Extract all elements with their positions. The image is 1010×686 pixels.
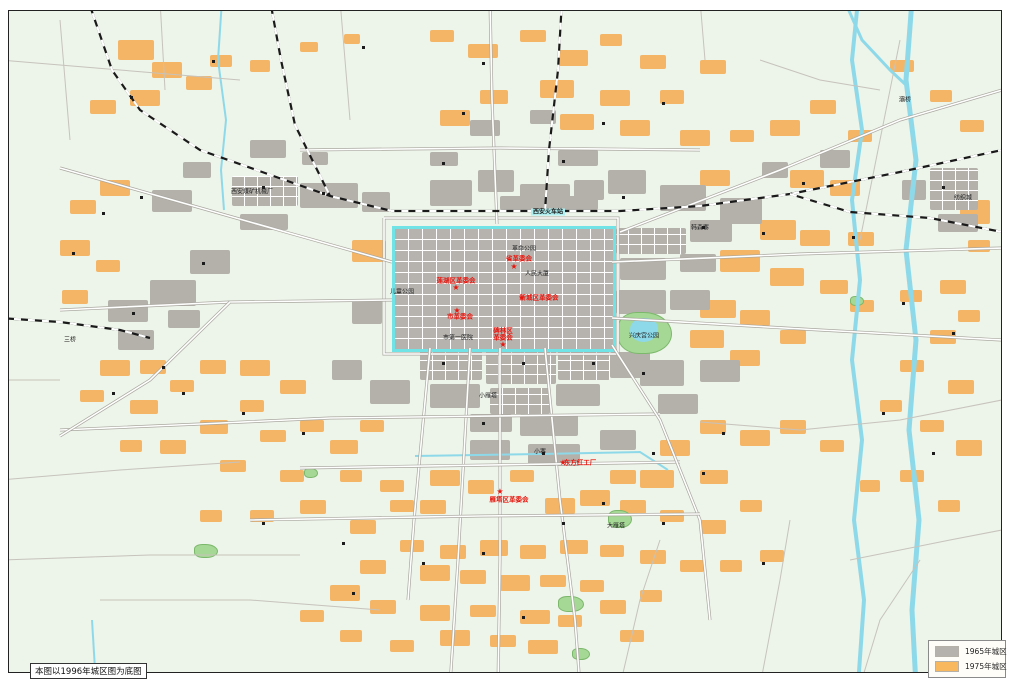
urban-area-1965 xyxy=(362,192,390,212)
urban-area-1965 xyxy=(930,168,978,210)
urban-area-1975 xyxy=(118,40,154,60)
urban-area-1975 xyxy=(880,400,902,412)
urban-area-1965 xyxy=(150,280,196,306)
urban-area-1975 xyxy=(968,240,990,252)
park-area xyxy=(304,468,318,478)
urban-area-1965 xyxy=(660,185,706,211)
building-footprint xyxy=(112,392,115,395)
urban-area-1975 xyxy=(420,500,446,514)
building-footprint xyxy=(602,502,605,505)
river xyxy=(906,10,919,673)
urban-area-1975 xyxy=(100,360,130,376)
urban-area-1965 xyxy=(680,254,716,272)
urban-area-1975 xyxy=(620,630,644,642)
urban-area-1975 xyxy=(740,310,770,326)
building-footprint xyxy=(592,362,595,365)
urban-area-1975 xyxy=(848,130,872,142)
major-road-casing xyxy=(250,514,700,520)
building-footprint xyxy=(622,196,625,199)
urban-area-1975 xyxy=(780,420,806,434)
place-label: 兴庆宫公园 xyxy=(629,333,659,340)
urban-area-1975 xyxy=(440,545,466,559)
building-footprint xyxy=(852,236,855,239)
urban-area-1965 xyxy=(490,388,550,414)
urban-area-1975 xyxy=(370,600,396,614)
urban-area-1975 xyxy=(780,330,806,344)
urban-area-1975 xyxy=(300,610,324,622)
place-label: 三桥 xyxy=(64,337,76,344)
building-footprint xyxy=(182,392,185,395)
urban-area-1965 xyxy=(352,300,382,324)
urban-area-1965 xyxy=(820,150,850,168)
urban-area-1975 xyxy=(720,560,742,572)
urban-area-1975 xyxy=(130,400,158,414)
urban-area-1965 xyxy=(608,170,646,194)
urban-area-1975 xyxy=(860,480,880,492)
urban-area-1965 xyxy=(558,150,598,166)
urban-area-1975 xyxy=(350,520,376,534)
urban-area-1975 xyxy=(760,220,796,240)
urban-area-1965 xyxy=(640,360,684,386)
urban-area-1975 xyxy=(560,114,594,130)
committee-star-icon: ★ xyxy=(452,284,459,292)
urban-area-1975 xyxy=(160,440,186,454)
urban-area-1975 xyxy=(820,440,844,452)
urban-area-1965 xyxy=(302,152,328,165)
urban-area-1975 xyxy=(100,180,130,196)
building-footprint xyxy=(702,472,705,475)
place-label: 儿童公园 xyxy=(390,289,414,296)
minor-road xyxy=(60,20,70,140)
urban-area-1975 xyxy=(800,230,830,246)
urban-area-1975 xyxy=(220,460,246,472)
major-road-casing xyxy=(300,462,680,468)
urban-area-1975 xyxy=(640,590,662,602)
urban-area-1965 xyxy=(240,214,288,230)
urban-area-1965 xyxy=(938,214,978,232)
urban-area-1975 xyxy=(610,470,636,484)
urban-area-1975 xyxy=(360,560,386,574)
urban-area-1975 xyxy=(340,470,362,482)
urban-area-1965 xyxy=(118,330,154,350)
urban-area-1975 xyxy=(520,30,546,42)
place-label: 市第一医院 xyxy=(443,335,473,342)
minor-road xyxy=(8,462,240,480)
urban-area-1965 xyxy=(470,120,500,136)
legend-swatch-1975 xyxy=(935,661,959,672)
urban-area-1975 xyxy=(400,540,424,552)
urban-area-1975 xyxy=(740,500,762,512)
park-area xyxy=(558,596,584,612)
building-footprint xyxy=(562,522,565,525)
urban-area-1975 xyxy=(520,545,546,559)
building-footprint xyxy=(352,592,355,595)
urban-area-1975 xyxy=(360,420,384,432)
minor-road xyxy=(700,10,705,60)
building-footprint xyxy=(72,252,75,255)
urban-area-1965 xyxy=(420,350,482,380)
committee-star-icon: ★ xyxy=(559,459,566,467)
urban-area-1975 xyxy=(580,490,610,506)
legend-label-1975: 1975年城区 xyxy=(965,661,1007,672)
urban-area-1975 xyxy=(500,575,530,591)
legend-swatch-1965 xyxy=(935,646,959,657)
urban-area-1975 xyxy=(460,570,486,584)
building-footprint xyxy=(662,522,665,525)
building-footprint xyxy=(882,412,885,415)
urban-area-1965 xyxy=(600,430,636,450)
major-road xyxy=(300,148,700,150)
urban-area-1975 xyxy=(620,120,650,136)
urban-area-1975 xyxy=(260,430,286,442)
building-footprint xyxy=(342,542,345,545)
building-footprint xyxy=(262,522,265,525)
urban-area-1975 xyxy=(848,232,874,246)
urban-area-1975 xyxy=(640,550,666,564)
urban-area-1975 xyxy=(490,635,516,647)
place-label: 韩森寨 xyxy=(691,225,709,232)
committee-star-icon: ★ xyxy=(499,341,506,349)
building-footprint xyxy=(642,372,645,375)
urban-area-1965 xyxy=(332,360,362,380)
urban-area-1975 xyxy=(760,550,784,562)
committee-label: 雁塔区革委会 xyxy=(490,497,529,504)
urban-area-1975 xyxy=(960,120,984,132)
urban-area-1975 xyxy=(890,60,914,72)
building-footprint xyxy=(140,196,143,199)
urban-area-1975 xyxy=(558,50,588,66)
place-label: 西安煤矿机械厂 xyxy=(231,189,273,196)
building-footprint xyxy=(242,412,245,415)
river xyxy=(852,10,864,673)
urban-area-1975 xyxy=(730,130,754,142)
urban-area-1975 xyxy=(62,290,88,304)
urban-area-1965 xyxy=(762,162,788,178)
map-canvas: 革命公园兴庆宫公园儿童公园人民大厦纺织城西安煤矿机械厂大雁塔小寨韩森寨小雁塔市第… xyxy=(8,10,1002,673)
urban-area-1975 xyxy=(810,100,836,114)
urban-area-1965 xyxy=(250,140,286,158)
urban-area-1965 xyxy=(478,170,514,192)
place-label: 纺织城 xyxy=(954,195,972,202)
urban-area-1975 xyxy=(440,110,470,126)
urban-area-1975 xyxy=(340,630,362,642)
minor-road xyxy=(100,600,380,610)
urban-area-1965 xyxy=(620,258,666,280)
urban-area-1975 xyxy=(900,470,924,482)
urban-area-1965 xyxy=(370,380,410,404)
urban-area-1975 xyxy=(700,60,726,74)
urban-area-1965 xyxy=(520,414,578,436)
urban-area-1975 xyxy=(680,130,710,146)
urban-area-1975 xyxy=(830,180,860,196)
major-road-casing xyxy=(60,418,330,430)
urban-area-1965 xyxy=(183,162,211,178)
urban-area-1975 xyxy=(560,540,588,554)
urban-area-1975 xyxy=(90,100,116,114)
building-footprint xyxy=(202,262,205,265)
urban-area-1975 xyxy=(390,640,414,652)
committee-star-icon: ★ xyxy=(453,307,460,315)
building-footprint xyxy=(762,562,765,565)
building-footprint xyxy=(302,432,305,435)
urban-area-1975 xyxy=(96,260,120,272)
building-footprint xyxy=(482,552,485,555)
committee-star-icon: ★ xyxy=(518,294,525,302)
major-road xyxy=(300,462,680,468)
building-footprint xyxy=(130,96,133,99)
urban-area-1965 xyxy=(486,350,556,384)
major-road-casing xyxy=(300,148,700,150)
urban-area-1975 xyxy=(700,520,726,534)
minor-road xyxy=(340,10,350,120)
building-footprint xyxy=(132,312,135,315)
urban-area-1965 xyxy=(470,414,512,432)
urban-area-1975 xyxy=(250,60,270,72)
urban-area-1975 xyxy=(956,440,982,456)
minor-road xyxy=(760,520,790,673)
urban-area-1975 xyxy=(770,268,804,286)
urban-area-1975 xyxy=(200,360,226,374)
railway xyxy=(270,10,330,196)
park-area xyxy=(194,544,218,558)
committee-star-icon: ★ xyxy=(510,263,517,271)
building-footprint xyxy=(662,102,665,105)
building-footprint xyxy=(422,562,425,565)
place-label: 小寨 xyxy=(534,449,546,456)
urban-area-1965 xyxy=(530,110,556,124)
minor-road xyxy=(760,60,880,90)
urban-area-1975 xyxy=(440,630,470,646)
urban-area-1975 xyxy=(430,470,460,486)
major-road xyxy=(408,348,430,600)
urban-area-1975 xyxy=(60,240,90,256)
urban-area-1975 xyxy=(280,470,304,482)
minor-road xyxy=(160,10,165,90)
urban-area-1975 xyxy=(170,380,194,392)
urban-area-1975 xyxy=(790,170,824,188)
urban-area-1975 xyxy=(300,500,326,514)
urban-area-1975 xyxy=(80,390,104,402)
minor-road xyxy=(700,400,1002,430)
urban-area-1975 xyxy=(240,360,270,376)
urban-area-1975 xyxy=(580,580,604,592)
urban-area-1975 xyxy=(660,510,684,522)
building-footprint xyxy=(522,362,525,365)
building-footprint xyxy=(522,616,525,619)
building-footprint xyxy=(942,186,945,189)
building-footprint xyxy=(482,62,485,65)
building-footprint xyxy=(362,46,365,49)
urban-area-1975 xyxy=(344,34,360,44)
urban-area-1975 xyxy=(558,615,582,627)
urban-area-1975 xyxy=(740,430,770,446)
urban-area-1965 xyxy=(556,384,600,406)
urban-area-1965 xyxy=(430,180,472,206)
building-footprint xyxy=(442,162,445,165)
urban-area-1975 xyxy=(545,498,575,514)
place-label: 人民大厦 xyxy=(525,271,549,278)
urban-area-1965 xyxy=(168,310,200,328)
urban-area-1975 xyxy=(680,560,704,572)
committee-star-icon: ★ xyxy=(496,488,503,496)
urban-area-1975 xyxy=(528,640,558,654)
urban-area-1965 xyxy=(430,384,480,408)
railway-dash xyxy=(270,10,330,196)
minor-road xyxy=(8,555,300,560)
urban-area-1975 xyxy=(540,575,566,587)
urban-area-1975 xyxy=(130,90,160,106)
railway-station-label: 西安火车站 xyxy=(531,209,565,216)
urban-area-1975 xyxy=(600,90,630,106)
building-footprint xyxy=(802,182,805,185)
urban-area-1975 xyxy=(920,420,944,432)
urban-area-1975 xyxy=(600,600,626,614)
urban-area-1975 xyxy=(958,310,980,322)
urban-area-1975 xyxy=(940,280,966,294)
place-label: 小雁塔 xyxy=(479,393,497,400)
major-road xyxy=(60,418,330,430)
urban-area-1975 xyxy=(820,280,848,294)
urban-area-1975 xyxy=(200,510,222,522)
urban-area-1975 xyxy=(390,500,414,512)
urban-area-1975 xyxy=(468,480,494,494)
urban-area-1965 xyxy=(190,250,230,274)
building-footprint xyxy=(562,160,565,163)
urban-area-1975 xyxy=(900,360,924,372)
urban-area-1975 xyxy=(70,200,96,214)
urban-area-1975 xyxy=(120,440,142,452)
map-page: 革命公园兴庆宫公园儿童公园人民大厦纺织城西安煤矿机械厂大雁塔小寨韩森寨小雁塔市第… xyxy=(0,0,1010,686)
river xyxy=(218,10,226,210)
urban-area-1975 xyxy=(470,605,496,617)
building-footprint xyxy=(762,232,765,235)
building-footprint xyxy=(482,422,485,425)
urban-area-1975 xyxy=(938,500,960,512)
urban-area-1965 xyxy=(670,290,710,310)
committee-label: 东方红工厂 xyxy=(564,460,597,467)
minor-road xyxy=(860,560,920,673)
minor-road xyxy=(850,530,1002,560)
building-footprint xyxy=(162,366,165,369)
urban-area-1975 xyxy=(200,420,228,434)
urban-area-1965 xyxy=(300,183,358,208)
urban-area-1975 xyxy=(330,440,358,454)
urban-area-1965 xyxy=(720,198,762,224)
urban-area-1975 xyxy=(300,420,324,432)
urban-area-1975 xyxy=(900,290,922,302)
park-area xyxy=(850,296,864,306)
urban-area-1965 xyxy=(700,360,740,382)
urban-area-1975 xyxy=(186,76,212,90)
building-footprint xyxy=(602,122,605,125)
urban-area-1965 xyxy=(470,440,510,460)
urban-area-1975 xyxy=(930,90,952,102)
urban-area-1975 xyxy=(540,80,574,98)
urban-area-1975 xyxy=(352,240,386,262)
building-footprint xyxy=(462,112,465,115)
urban-area-1975 xyxy=(152,62,182,78)
urban-area-1975 xyxy=(700,170,730,186)
building-footprint xyxy=(322,192,325,195)
urban-area-1975 xyxy=(250,510,274,522)
building-footprint xyxy=(102,212,105,215)
building-footprint xyxy=(442,362,445,365)
river xyxy=(846,10,906,85)
place-label: 大雁塔 xyxy=(607,523,625,530)
urban-area-1975 xyxy=(420,565,450,581)
building-footprint xyxy=(652,452,655,455)
urban-area-1965 xyxy=(616,290,666,314)
urban-area-1975 xyxy=(770,120,800,136)
urban-area-1975 xyxy=(948,380,974,394)
building-footprint xyxy=(212,60,215,63)
urban-area-1965 xyxy=(558,350,610,380)
place-label: 灞桥 xyxy=(899,97,911,104)
building-footprint xyxy=(902,302,905,305)
urban-area-1975 xyxy=(690,330,724,348)
urban-area-1975 xyxy=(300,42,318,52)
urban-area-1975 xyxy=(660,440,690,456)
building-footprint xyxy=(722,432,725,435)
urban-area-1965 xyxy=(616,228,686,254)
legend-item-1965: 1965年城区 xyxy=(935,646,999,657)
building-footprint xyxy=(932,452,935,455)
urban-area-1975 xyxy=(600,34,622,46)
urban-area-1975 xyxy=(330,585,360,601)
urban-area-1975 xyxy=(420,605,450,621)
map-frame: 革命公园兴庆宫公园儿童公园人民大厦纺织城西安煤矿机械厂大雁塔小寨韩森寨小雁塔市第… xyxy=(8,10,1002,673)
basemap-note: 本图以1996年城区图为底图 xyxy=(30,663,147,679)
urban-area-1965 xyxy=(902,180,926,200)
major-road-casing xyxy=(408,348,430,600)
urban-area-1965 xyxy=(152,190,192,212)
urban-area-1975 xyxy=(640,470,674,488)
legend-label-1965: 1965年城区 xyxy=(965,646,1007,657)
urban-area-1965 xyxy=(108,300,148,322)
urban-area-1965 xyxy=(658,394,698,414)
major-road xyxy=(250,514,700,520)
urban-area-1975 xyxy=(510,470,534,482)
place-label: 革命公园 xyxy=(512,246,536,253)
park-area xyxy=(572,648,590,660)
urban-area-1975 xyxy=(240,400,264,412)
map-legend: 1965年城区 1975年城区 xyxy=(928,640,1006,678)
urban-area-1975 xyxy=(640,55,666,69)
urban-area-1975 xyxy=(280,380,306,394)
urban-area-1975 xyxy=(480,90,508,104)
urban-area-1975 xyxy=(430,30,454,42)
urban-area-1975 xyxy=(600,545,624,557)
legend-item-1975: 1975年城区 xyxy=(935,661,999,672)
urban-area-1975 xyxy=(468,44,498,58)
building-footprint xyxy=(952,332,955,335)
urban-area-1975 xyxy=(380,480,404,492)
urban-area-1975 xyxy=(720,250,760,272)
